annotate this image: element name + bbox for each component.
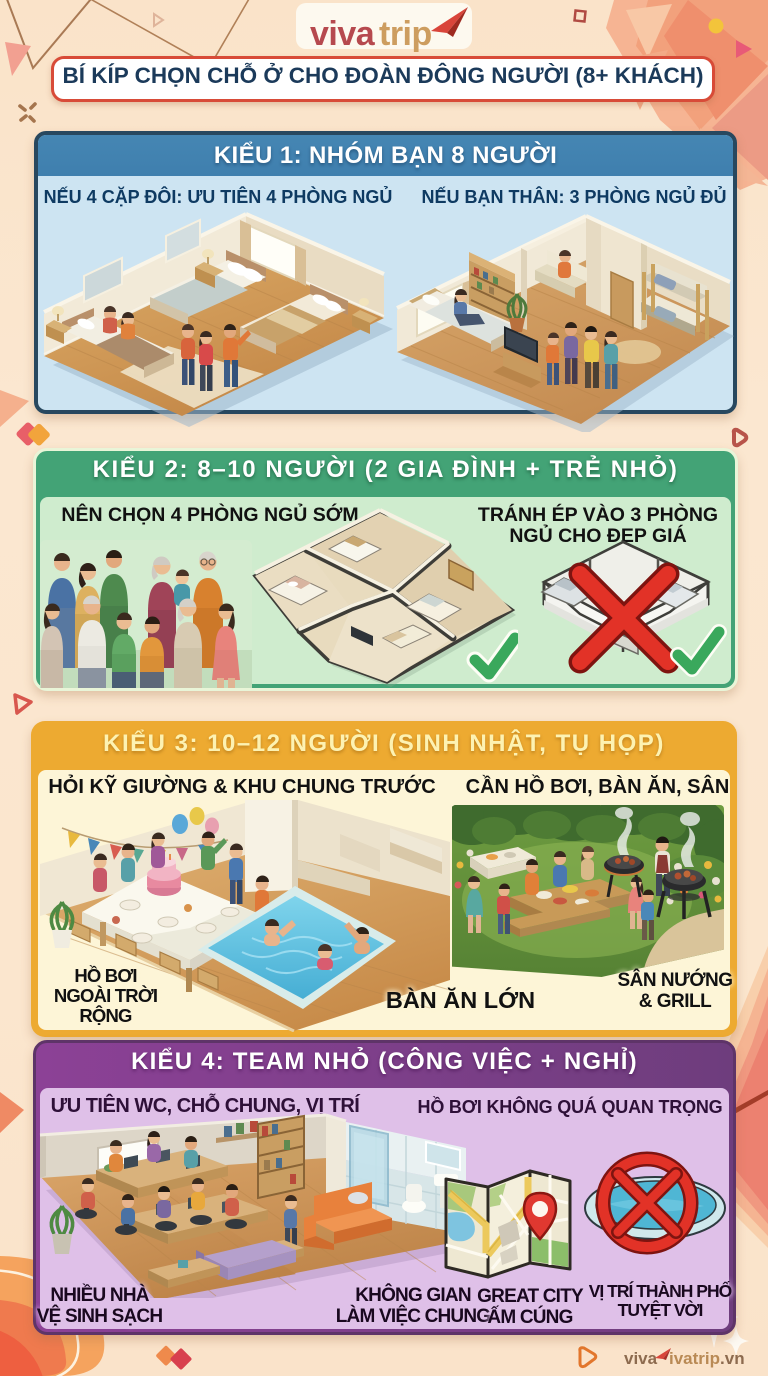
svg-text:ivatrip.vn: ivatrip.vn bbox=[669, 1349, 745, 1368]
svg-text:viva: viva bbox=[310, 15, 376, 53]
svg-text:trip: trip bbox=[379, 15, 432, 53]
svg-text:viva: viva bbox=[624, 1349, 658, 1368]
